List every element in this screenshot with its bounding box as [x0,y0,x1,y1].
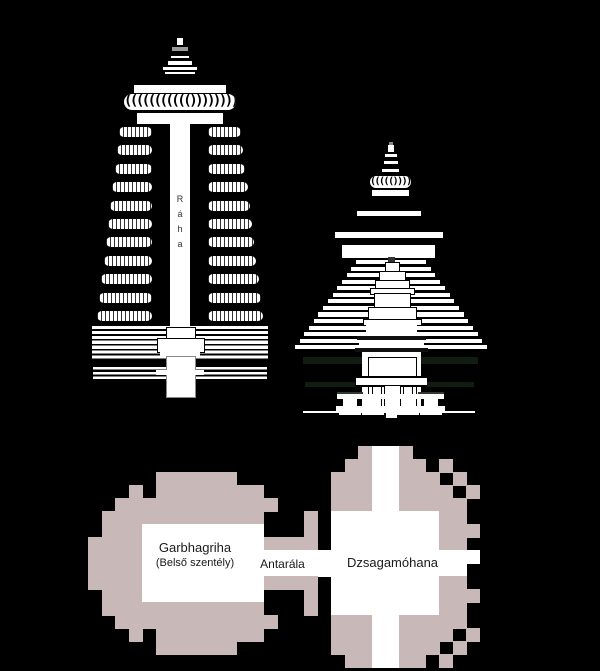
plan-wall-cell [102,589,116,603]
plan-wall-cell [466,589,480,603]
plan-room-cell [183,576,197,590]
beki-neck-slab [137,113,223,124]
plan-wall-cell [102,602,116,616]
plan-wall-cell [358,485,372,499]
plan-room-cell [183,524,197,538]
plan-room-cell [399,524,413,538]
plan-wall-cell [345,459,359,473]
plan-wall-cell [345,498,359,512]
bhumi-amala-pill [106,237,152,247]
portal-step-block [157,338,205,353]
plan-wall-cell [291,537,305,551]
plan-wall-cell [331,485,345,499]
plan-room-cell [345,589,359,603]
plan-wall-cell [237,615,251,629]
plan-wall-cell [196,628,210,642]
plan-wall-cell [453,576,467,590]
plan-room-cell [426,537,440,551]
plan-wall-cell [412,498,426,512]
plan-room-cell [250,589,264,603]
plan-wall-cell [426,498,440,512]
plan-wall-cell [453,511,467,525]
kalasha-finial [388,145,394,152]
plan-room-cell [372,511,386,525]
plan-wall-cell [156,472,170,486]
kalasha-finial-ring [168,61,192,65]
bhumi-amala-pill [208,164,245,174]
porch-band [366,324,417,336]
plan-room-cell [358,524,372,538]
plan-room-cell [426,576,440,590]
plan-room-cell [169,576,183,590]
plan-room-cell [142,576,156,590]
plan-wall-cell [196,615,210,629]
plan-wall-cell [358,446,372,460]
plan-wall-cell [156,511,170,525]
plan-wall-cell [264,537,278,551]
plan-wall-cell [183,485,197,499]
plan-wall-cell [250,498,264,512]
plan-room-cell [331,602,345,616]
kalasha-finial-ring [385,154,397,157]
plan-wall-cell [183,472,197,486]
plan-room-cell [345,511,359,525]
plan-wall-cell [439,511,453,525]
plan-wall-cell [358,459,372,473]
plan-room-cell [372,485,386,499]
plan-wall-cell [210,628,224,642]
plan-room-cell [372,654,386,668]
column-pedestal [417,392,445,418]
plan-wall-cell [426,485,440,499]
plan-wall-cell [345,628,359,642]
plan-wall-cell [102,524,116,538]
plan-wall-cell [358,628,372,642]
plan-wall-cell [169,628,183,642]
plan-room-cell [169,524,183,538]
plan-wall-cell [129,485,143,499]
plan-wall-cell [358,498,372,512]
plan-room-cell [210,589,224,603]
plan-wall-cell [412,641,426,655]
plan-wall-cell [453,524,467,538]
bhumi-amala-pill [99,293,152,303]
garbhagriha-label: Garbhagriha [135,540,255,555]
doorway-column [166,356,196,398]
bhumi-amala-pill [104,256,152,266]
plan-wall-cell [453,472,467,486]
plan-room-cell [426,524,440,538]
plan-room-cell [385,524,399,538]
plan-wall-cell [88,537,102,551]
plan-room-cell [358,602,372,616]
plan-wall-cell [399,472,413,486]
bhumi-amala-pill [208,182,248,192]
plinth-dark-band [421,357,478,364]
plan-wall-cell [183,498,197,512]
plan-room-cell [345,576,359,590]
porch-band [359,340,424,348]
plan-wall-cell [129,602,143,616]
plan-room-cell [250,524,264,538]
plan-wall-cell [102,563,116,577]
garbhagriha-sublabel: (Belső szentély) [135,556,255,570]
plan-wall-cell [210,602,224,616]
plan-wall-cell [210,641,224,655]
plan-room-cell [372,498,386,512]
pedestal-foot [420,411,442,415]
plan-wall-cell [156,628,170,642]
plan-wall-cell [210,485,224,499]
kalasha-finial-ring [382,169,399,172]
plan-room-cell [385,628,399,642]
plan-room-cell [385,459,399,473]
plan-wall-cell [426,628,440,642]
plan-room-cell [331,576,345,590]
pedestal-waist [401,399,415,406]
pedestal-foot [339,411,361,415]
bhumi-amala-pill [208,127,241,137]
plan-room-cell [156,576,170,590]
raha-central-band: R á h a [170,124,190,334]
plan-wall-cell [399,641,413,655]
plan-wall-cell [399,654,413,668]
plan-wall-cell [223,628,237,642]
raha-label: R á h a [170,192,190,252]
plan-room-cell [426,602,440,616]
plan-room-cell [196,524,210,538]
plan-wall-cell [142,511,156,525]
plan-room-cell [412,589,426,603]
plan-room-cell [399,602,413,616]
plan-wall-cell [237,511,251,525]
plan-room-cell [385,485,399,499]
plinth-dark-band [303,357,362,364]
plan-room-cell [385,511,399,525]
plan-wall-cell [466,524,480,538]
plan-wall-cell [453,602,467,616]
plan-wall-cell [210,615,224,629]
plan-wall-cell [129,628,143,642]
plan-room-cell [372,589,386,603]
plan-wall-cell [453,589,467,603]
plan-wall-cell [439,537,453,551]
plan-wall-cell [142,498,156,512]
plan-room-cell [142,589,156,603]
plan-wall-cell [237,602,251,616]
plan-room-cell [372,524,386,538]
plan-wall-cell [169,615,183,629]
plan-wall-cell [453,615,467,629]
plan-wall-cell [264,615,278,629]
plan-wall-cell [304,537,318,551]
plan-wall-cell [399,446,413,460]
plan-wall-cell [264,576,278,590]
plan-room-cell [223,589,237,603]
plan-wall-cell [129,589,143,603]
plan-room-cell [399,537,413,551]
kalasha-finial-base [163,67,197,70]
plan-wall-cell [210,472,224,486]
plan-wall-cell [196,602,210,616]
doorway-lintel [156,370,204,375]
plan-wall-cell [156,602,170,616]
kalasha-finial-ring [384,161,398,164]
plan-wall-cell [453,537,467,551]
plan-wall-cell [129,498,143,512]
plan-wall-cell [412,628,426,642]
plan-wall-cell [102,550,116,564]
plan-wall-cell [115,589,129,603]
plan-wall-cell [250,628,264,642]
diagram-canvas: ((((((((((())))))))))) R á h a ((((())))… [0,0,600,671]
plan-wall-cell [115,576,129,590]
plan-room-cell [372,602,386,616]
plan-wall-cell [88,576,102,590]
plan-room-cell [466,550,480,564]
plan-wall-cell [466,485,480,499]
plinth-dark-band [424,382,474,387]
plan-wall-cell [169,472,183,486]
plan-wall-cell [250,485,264,499]
plan-wall-cell [439,576,453,590]
plan-wall-cell [345,485,359,499]
plan-wall-cell [358,615,372,629]
bhumi-amala-pill [117,145,152,155]
plan-wall-cell [196,641,210,655]
plan-room-cell [412,511,426,525]
plan-wall-cell [412,654,426,668]
plan-wall-cell [412,459,426,473]
plan-room-cell [372,446,386,460]
plan-room-cell [345,602,359,616]
bhumi-amala-pill [97,311,152,321]
plan-room-cell [385,654,399,668]
plan-wall-cell [439,615,453,629]
plan-wall-cell [223,615,237,629]
pedestal-foot [397,411,419,415]
plan-room-cell [385,472,399,486]
plan-wall-cell [115,602,129,616]
plan-wall-cell [88,563,102,577]
plan-wall-cell [156,615,170,629]
bhumi-amala-pill [208,201,250,211]
plan-room-cell [412,576,426,590]
plan-wall-cell [277,537,291,551]
bhumi-amala-pill [208,237,254,247]
bhumi-amala-pill [208,145,243,155]
bhumi-amala-pill [101,274,152,284]
plan-wall-cell [169,511,183,525]
plan-room-cell [372,615,386,629]
plan-wall-cell [142,602,156,616]
plan-room-cell [385,576,399,590]
plan-room-cell [210,524,224,538]
plan-wall-cell [169,498,183,512]
plan-wall-cell [115,550,129,564]
plan-room-cell [331,511,345,525]
plan-wall-cell [466,628,480,642]
plan-wall-cell [169,602,183,616]
plan-wall-cell [304,511,318,525]
plan-room-cell [372,459,386,473]
pedestal-waist [424,399,438,406]
plan-room-cell [156,524,170,538]
ghanta-slab [335,232,443,238]
plan-wall-cell [250,615,264,629]
plan-room-cell [426,511,440,525]
plan-wall-cell [358,641,372,655]
plan-wall-cell [331,641,345,655]
plan-room-cell [372,472,386,486]
plan-wall-cell [399,615,413,629]
amalaka-ribbed-disc: ((((())))) [370,176,411,188]
bhumi-amala-pill [108,219,152,229]
plan-wall-cell [102,537,116,551]
plan-wall-cell [250,511,264,525]
plan-wall-cell [250,602,264,616]
plan-room-cell [210,576,224,590]
beki-neck-slab [372,190,409,196]
plan-room-cell [237,524,251,538]
plan-room-cell [223,524,237,538]
plan-wall-cell [102,511,116,525]
plan-room-cell [196,576,210,590]
plan-room-cell [385,446,399,460]
plan-wall-cell [129,524,143,538]
plan-wall-cell [129,576,143,590]
plan-wall-cell [439,485,453,499]
plan-wall-cell [331,498,345,512]
plan-room-cell [169,589,183,603]
plan-wall-cell [223,511,237,525]
plan-wall-cell [156,485,170,499]
plan-room-cell [358,537,372,551]
plan-wall-cell [142,615,156,629]
plan-wall-cell [196,498,210,512]
plan-room-cell [372,537,386,551]
plan-room-cell [385,537,399,551]
plan-wall-cell [102,576,116,590]
plan-wall-cell [169,485,183,499]
plan-room-cell [412,524,426,538]
kalasha-finial-ring [171,56,189,58]
plan-room-cell [223,576,237,590]
plan-room-cell [412,602,426,616]
plan-room-cell [399,511,413,525]
plan-wall-cell [399,485,413,499]
plan-wall-cell [223,641,237,655]
plan-wall-cell [358,472,372,486]
plan-wall-cell [277,576,291,590]
kalasha-finial-base [165,72,195,74]
plan-wall-cell [439,654,453,668]
plan-wall-cell [237,628,251,642]
plan-room-cell [237,576,251,590]
plan-wall-cell [439,524,453,538]
plan-wall-cell [115,524,129,538]
plan-wall-cell [210,511,224,525]
plan-room-cell [331,524,345,538]
plan-wall-cell [345,615,359,629]
plan-wall-cell [129,615,143,629]
plan-wall-cell [237,498,251,512]
column-pedestal [359,392,387,418]
plan-room-cell [345,524,359,538]
plan-wall-cell [304,524,318,538]
plan-room-cell [358,589,372,603]
plan-wall-cell [412,472,426,486]
plan-wall-cell [399,459,413,473]
plan-wall-cell [183,641,197,655]
plan-room-cell [196,589,210,603]
pedestal-waist [366,399,380,406]
plan-wall-cell [304,576,318,590]
plan-wall-cell [115,511,129,525]
plan-room-cell [385,641,399,655]
plan-wall-cell [439,498,453,512]
plan-room-cell [183,589,197,603]
plan-wall-cell [115,498,129,512]
plan-wall-cell [399,628,413,642]
plan-wall-cell [196,485,210,499]
plinth-dark-band [305,382,355,387]
plan-room-cell [358,576,372,590]
ghanta-slab [357,211,421,216]
kalasha-finial-tip [177,38,183,45]
plan-wall-cell [183,602,197,616]
pedestal-foot [362,411,384,415]
mastaka-cap-slab [134,85,226,93]
jagamohana-label: Dzsagamóhana [330,555,455,570]
plan-wall-cell [223,602,237,616]
plan-wall-cell [291,576,305,590]
plan-room-cell [237,589,251,603]
plan-wall-cell [304,589,318,603]
plan-wall-cell [183,628,197,642]
plan-wall-cell [129,511,143,525]
plan-wall-cell [331,615,345,629]
amalaka-ribbed-disc: ((((((((((())))))))))) [124,94,236,110]
ground-line [303,411,475,413]
bhumi-amala-pill [208,256,256,266]
plan-room-cell [372,628,386,642]
plan-wall-cell [426,472,440,486]
plan-room-cell [142,524,156,538]
plan-wall-cell [345,641,359,655]
plan-wall-cell [183,511,197,525]
plan-room-cell [412,537,426,551]
bhumi-amala-pill [112,182,152,192]
plan-wall-cell [426,641,440,655]
plan-wall-cell [115,615,129,629]
bhumi-amala-pill [208,274,259,284]
bhumi-amala-pill [208,293,261,303]
antarala-label: Antarála [245,557,320,571]
plan-wall-cell [196,472,210,486]
plan-room-cell [345,537,359,551]
plan-wall-cell [345,654,359,668]
plan-wall-cell [453,641,467,655]
bhumi-amala-pill [208,219,252,229]
bhumi-amala-pill [119,127,152,137]
bhumi-amala-pill [208,311,263,321]
plan-wall-cell [439,628,453,642]
plan-wall-cell [331,628,345,642]
plan-wall-cell [223,485,237,499]
plan-room-cell [156,589,170,603]
plan-wall-cell [237,485,251,499]
